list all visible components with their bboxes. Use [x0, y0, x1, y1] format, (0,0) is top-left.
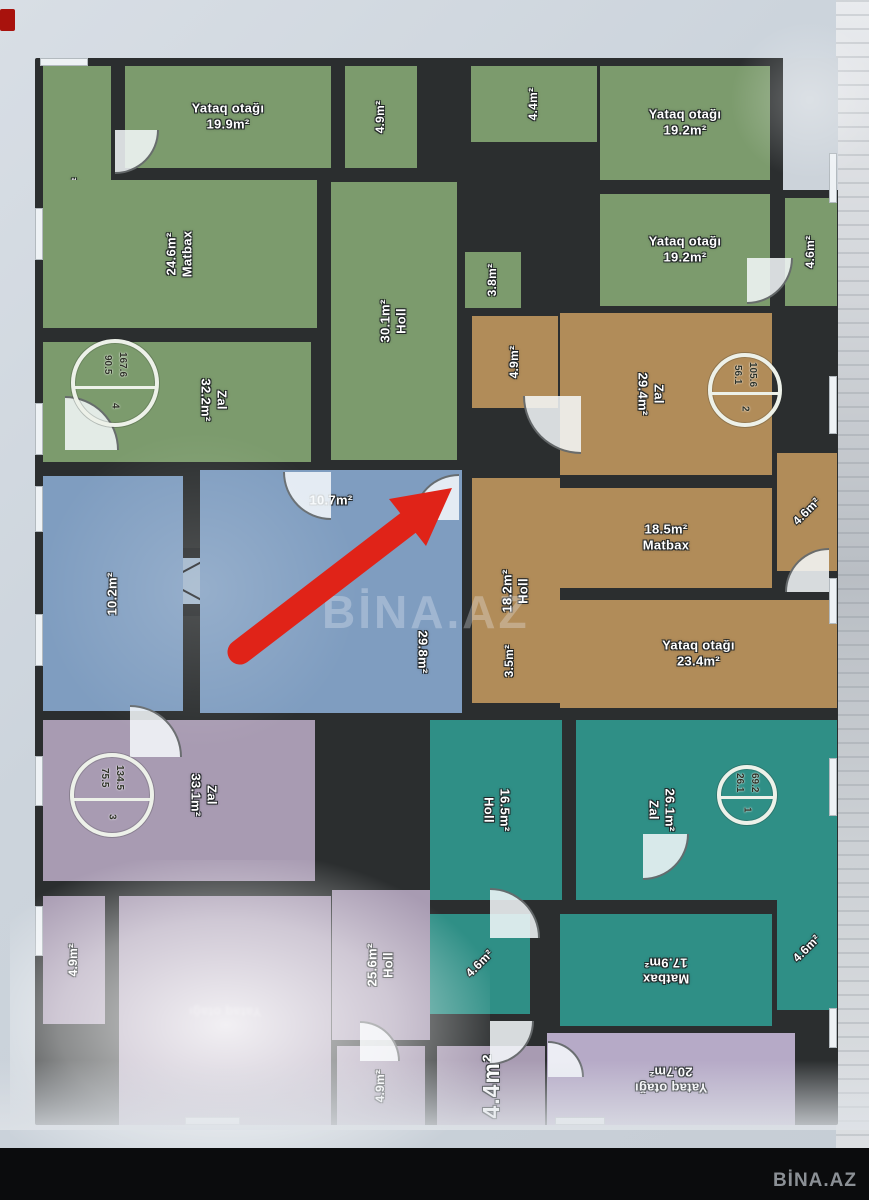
room-label-text: 33.1m²: [188, 774, 203, 817]
room-label: 10.2m²: [106, 572, 121, 615]
room-room-4-4-top: 4.4m²: [471, 66, 597, 142]
room-matbax-18-5: 18.5m²Matbax: [560, 488, 772, 588]
room-label-text: Yataq otağı: [649, 108, 722, 123]
room-label-text: 4.6m²: [791, 933, 824, 966]
room-label: Zal29.4m²: [635, 373, 666, 416]
room-label: 4.9m²: [374, 1069, 388, 1102]
room-zal-26-1: 26.1m²Zal: [576, 720, 837, 900]
room-label-text: Yataq otağı: [192, 102, 265, 117]
door-arc: [523, 396, 581, 454]
room-room-4-9-purple-a: 4.9m²: [43, 896, 105, 1024]
photo-edge-strip: [836, 0, 869, 1148]
room-holl-25-6: 25.6m²Holl: [332, 890, 430, 1040]
window-gap: [829, 1008, 837, 1048]
room-label-text: 19.9m²: [207, 118, 250, 133]
room-room-10-2: 10.2m²: [43, 476, 183, 711]
room-label: 4.9m²: [508, 346, 522, 379]
room-label-text: 25.6m²: [366, 944, 381, 987]
room-label: 4.9m²: [67, 944, 81, 977]
room-label: 4.6m²: [791, 496, 824, 529]
room-label-text: 16.5m²: [497, 789, 512, 832]
room-label-text: 17.9m²: [645, 955, 688, 970]
room-label-text: Yataq otağı: [635, 1080, 708, 1095]
watermark-corner: BİNA.AZ: [773, 1170, 857, 1192]
room-holl-16-5: 16.5m²Holl: [430, 720, 562, 900]
room-room-4-9-brown: 4.9m²: [472, 316, 558, 408]
room-label: Yataq otağı23.4m²: [662, 639, 735, 670]
room-label-text: Yataq otağı: [189, 1003, 262, 1018]
room-label-text: Yataq otağı: [649, 235, 722, 250]
badge-apartment-number: 1: [742, 807, 753, 813]
room-label: 4.9m²: [374, 101, 388, 134]
badge-apartment-number: 4: [110, 403, 121, 409]
window-gap: [829, 376, 837, 434]
room-room-4-6-teal-b: 4.6m²: [777, 888, 837, 1010]
room-label-text: 4.9m²: [67, 944, 81, 977]
room-label-text: 19.2m²: [664, 251, 707, 266]
room-label-text: 4.6m²: [804, 236, 818, 269]
room-label-text: Holl: [481, 797, 496, 823]
room-label: 4.6m²: [791, 933, 824, 966]
room-label: 24.6m²Matbax: [165, 231, 196, 278]
room-yataq-19-2-a: Yataq otağı19.2m²: [600, 66, 770, 180]
room-matbax-17-9: Matbax17.9m²: [560, 914, 772, 1026]
room-label: Yataq otağı: [189, 1003, 262, 1018]
room-label: Matbax17.9m²: [643, 955, 690, 986]
room-label: 18.5m²Matbax: [643, 523, 690, 554]
room-label-text: 3.5m²: [503, 644, 517, 677]
room-label-text: 3.8m²: [486, 264, 500, 297]
apartment-badge-2: 56.1105.62: [708, 353, 782, 427]
room-label: Yataq otağı19.2m²: [649, 108, 722, 139]
badge-apartment-number: 3: [107, 814, 118, 820]
badge-living-area: 90.5: [102, 355, 113, 374]
window-gap: [35, 403, 43, 455]
room-label: Zal32.2m²: [198, 379, 229, 422]
room-label-text: Zal: [204, 785, 219, 805]
apartment-badge-4: 90.5167.64: [71, 339, 159, 427]
room-yataq-glare: Yataq otağı: [119, 896, 331, 1125]
room-label-text: 4.9m²: [374, 101, 388, 134]
room-label-text: 4.6m²: [791, 496, 824, 529]
badge-apartment-number: 2: [740, 406, 751, 412]
badge-living-area: 26.1: [734, 773, 745, 792]
window-gap: [185, 1117, 240, 1125]
room-label: Yataq otağı19.9m²: [192, 102, 265, 133]
room-label-text: Matbax: [643, 539, 690, 554]
room-label: Zal33.1m²: [188, 774, 219, 817]
watermark-center: BİNA.AZ: [322, 585, 530, 639]
room-label-text: Matbax: [181, 231, 196, 278]
room-label-text: 19.2m²: [664, 124, 707, 139]
room-label: 4.4m²: [527, 88, 541, 121]
room-label-text: Zal: [651, 384, 666, 404]
window-gap: [35, 614, 43, 666]
badge-total-area: 134.5: [114, 765, 125, 790]
room-holl-30-1: 30.1m²Holl: [331, 182, 457, 460]
room-label: 3.8m²: [486, 264, 500, 297]
room-label-text: Zal: [646, 800, 661, 820]
room-label-text: Yataq otağı: [662, 639, 735, 654]
room-label-text: 4.6m²: [464, 948, 497, 981]
badge-living-area: 75.5: [99, 768, 110, 787]
room-label-text: 18.5m²: [645, 523, 688, 538]
room-yataq-19-9: Yataq otağı19.9m²: [125, 66, 331, 168]
room-label: 26.1m²Zal: [646, 789, 677, 832]
room-label: 30.1m²Holl: [379, 300, 410, 343]
room-label: 4.6m²: [464, 948, 497, 981]
room-label-text: Holl: [382, 952, 397, 978]
room-label-text: Holl: [395, 308, 410, 334]
badge-total-area: 69.2: [749, 773, 760, 792]
window-gap: [35, 906, 43, 956]
badge-total-area: 105.6: [747, 362, 758, 387]
apartment-badge-1: 26.169.21: [717, 765, 777, 825]
screenshot-root: { "watermark": { "center": "BİNA.AZ", "c…: [0, 0, 869, 1200]
room-label-text: 4.9m²: [374, 1069, 388, 1102]
room-yataq-20-7: Yataq otağı20.7m²: [547, 1033, 795, 1125]
room-label-text: 32.2m²: [198, 379, 213, 422]
room-label-text: Zal: [214, 390, 229, 410]
apartment-badge-3: 75.5134.53: [70, 753, 154, 837]
room-label-text: 29.4m²: [635, 373, 650, 416]
room-label-text: 26.1m²: [662, 789, 677, 832]
room-room-4-9-top: 4.9m²: [345, 66, 417, 168]
room-label: 4.6m²: [804, 236, 818, 269]
room-label: 16.5m²Holl: [481, 789, 512, 832]
bottom-black-band: BİNA.AZ: [0, 1148, 869, 1200]
corner-red-mark: [0, 9, 15, 31]
room-room-3-8: 3.8m²: [465, 252, 521, 308]
room-room-4-6-green: 4.6m²: [785, 198, 837, 306]
room-label-text: 20.7m²: [650, 1064, 693, 1079]
badge-living-area: 56.1: [732, 365, 743, 384]
window-gap: [35, 756, 43, 806]
room-label-text: Matbax: [643, 971, 690, 986]
window-gap: [555, 1117, 605, 1125]
room-label-text: 23.4m²: [677, 655, 720, 670]
window-gap: [829, 758, 837, 816]
room-label-text: 4.9m²: [508, 346, 522, 379]
window-gap: [35, 208, 43, 260]
room-label: Yataq otağı19.2m²: [649, 235, 722, 266]
door-arc: [130, 705, 182, 757]
room-label-text: 4.4m²: [527, 88, 541, 121]
window-gap: [829, 153, 837, 203]
room-label-text: 24.6m²: [165, 233, 180, 276]
room-yataq-19-2-b: Yataq otağı19.2m²: [600, 194, 770, 306]
room-label: 25.6m²Holl: [366, 944, 397, 987]
room-matbax-24-6: 24.6m²Matbax: [43, 180, 317, 328]
room-yataq-23-4: Yataq otağı23.4m²: [560, 600, 837, 708]
room-label-text: 30.1m²: [379, 300, 394, 343]
window-gap: [829, 578, 837, 624]
badge-total-area: 167.6: [117, 352, 128, 377]
room-label: 3.5m²: [503, 644, 517, 677]
window-gap: [35, 486, 43, 532]
window-gap: [40, 58, 88, 66]
room-label: Yataq otağı20.7m²: [635, 1064, 708, 1095]
room-label-text: 10.2m²: [106, 572, 121, 615]
